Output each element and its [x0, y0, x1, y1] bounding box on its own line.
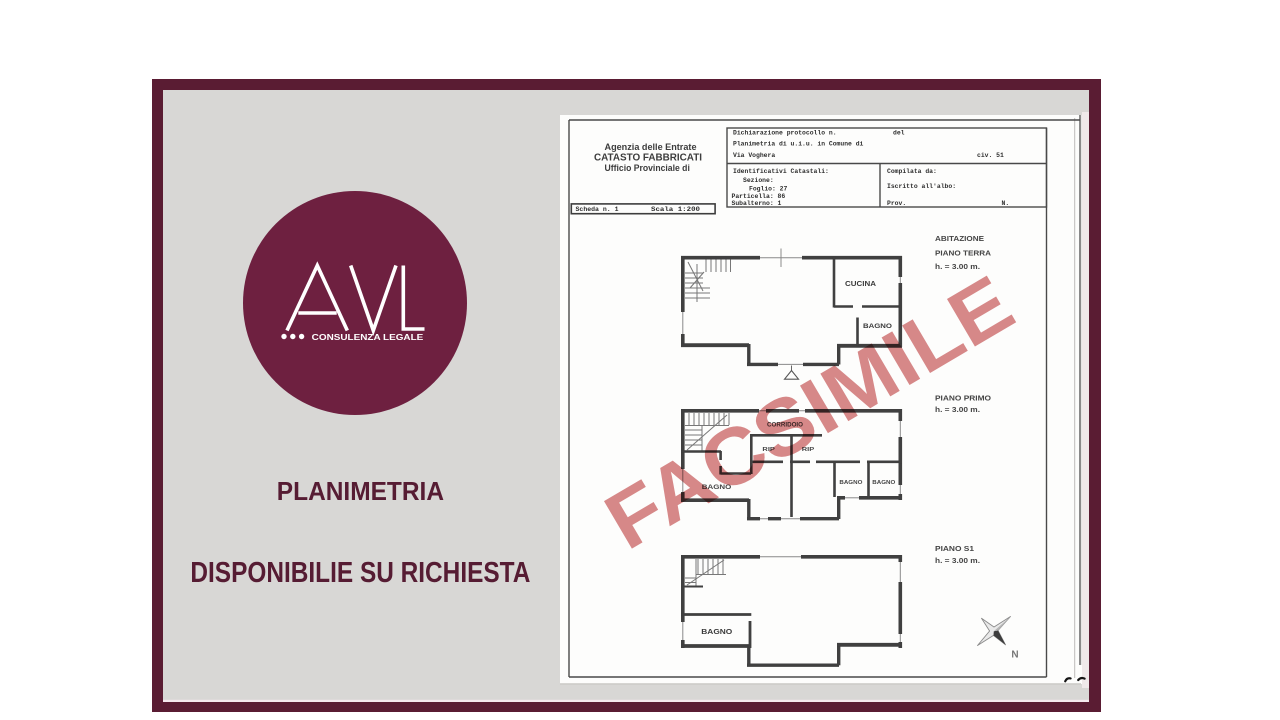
- svg-text:PLANIMETRIA: PLANIMETRIA: [277, 476, 444, 506]
- svg-text:Compilata da:: Compilata da:: [887, 168, 937, 175]
- svg-text:Prov.: Prov.: [887, 200, 906, 207]
- svg-text:ABITAZIONE: ABITAZIONE: [935, 234, 984, 243]
- svg-text:Subalterno: 1: Subalterno: 1: [732, 200, 782, 207]
- svg-text:CONSULENZA LEGALE: CONSULENZA LEGALE: [312, 332, 424, 342]
- svg-text:Scala 1:200: Scala 1:200: [651, 206, 700, 213]
- svg-text:BAGNO: BAGNO: [872, 480, 896, 486]
- svg-text:BAGNO: BAGNO: [701, 629, 733, 636]
- svg-text:h. = 3.00 m.: h. = 3.00 m.: [935, 556, 980, 565]
- svg-text:CUCINA: CUCINA: [845, 281, 876, 288]
- svg-text:Particella: 86: Particella: 86: [732, 193, 786, 200]
- svg-text:civ. 51: civ. 51: [977, 152, 1004, 159]
- svg-text:Ufficio Provinciale di: Ufficio Provinciale di: [605, 163, 690, 173]
- svg-text:Via Voghera: Via Voghera: [733, 152, 775, 159]
- svg-text:Scheda n. 1: Scheda n. 1: [576, 206, 619, 213]
- svg-text:h. = 3.00 m.: h. = 3.00 m.: [935, 405, 980, 414]
- svg-text:PIANO S1: PIANO S1: [935, 544, 974, 553]
- svg-text:Planimetria di u.i.u. in Comun: Planimetria di u.i.u. in Comune di: [733, 141, 864, 148]
- svg-text:PIANO PRIMO: PIANO PRIMO: [935, 394, 991, 403]
- svg-text:BAGNO: BAGNO: [839, 480, 863, 486]
- svg-text:Dichiarazione protocollo n.: Dichiarazione protocollo n.: [733, 130, 837, 137]
- svg-text:Sezione:: Sezione:: [743, 177, 774, 184]
- svg-text:del: del: [893, 130, 905, 137]
- svg-text:N.: N.: [1002, 200, 1010, 207]
- svg-text:Identificativi Catastali:: Identificativi Catastali:: [733, 168, 829, 175]
- svg-text:N: N: [1011, 650, 1018, 661]
- svg-text:Iscritto all'albo:: Iscritto all'albo:: [887, 183, 956, 190]
- svg-text:PIANO TERRA: PIANO TERRA: [935, 249, 992, 258]
- svg-text:Foglio: 27: Foglio: 27: [749, 186, 788, 193]
- svg-text:CATASTO FABBRICATI: CATASTO FABBRICATI: [594, 152, 702, 164]
- svg-text:Agenzia delle Entrate: Agenzia delle Entrate: [605, 142, 697, 152]
- svg-text:DISPONIBILIE SU RICHIESTA: DISPONIBILIE SU RICHIESTA: [190, 557, 530, 589]
